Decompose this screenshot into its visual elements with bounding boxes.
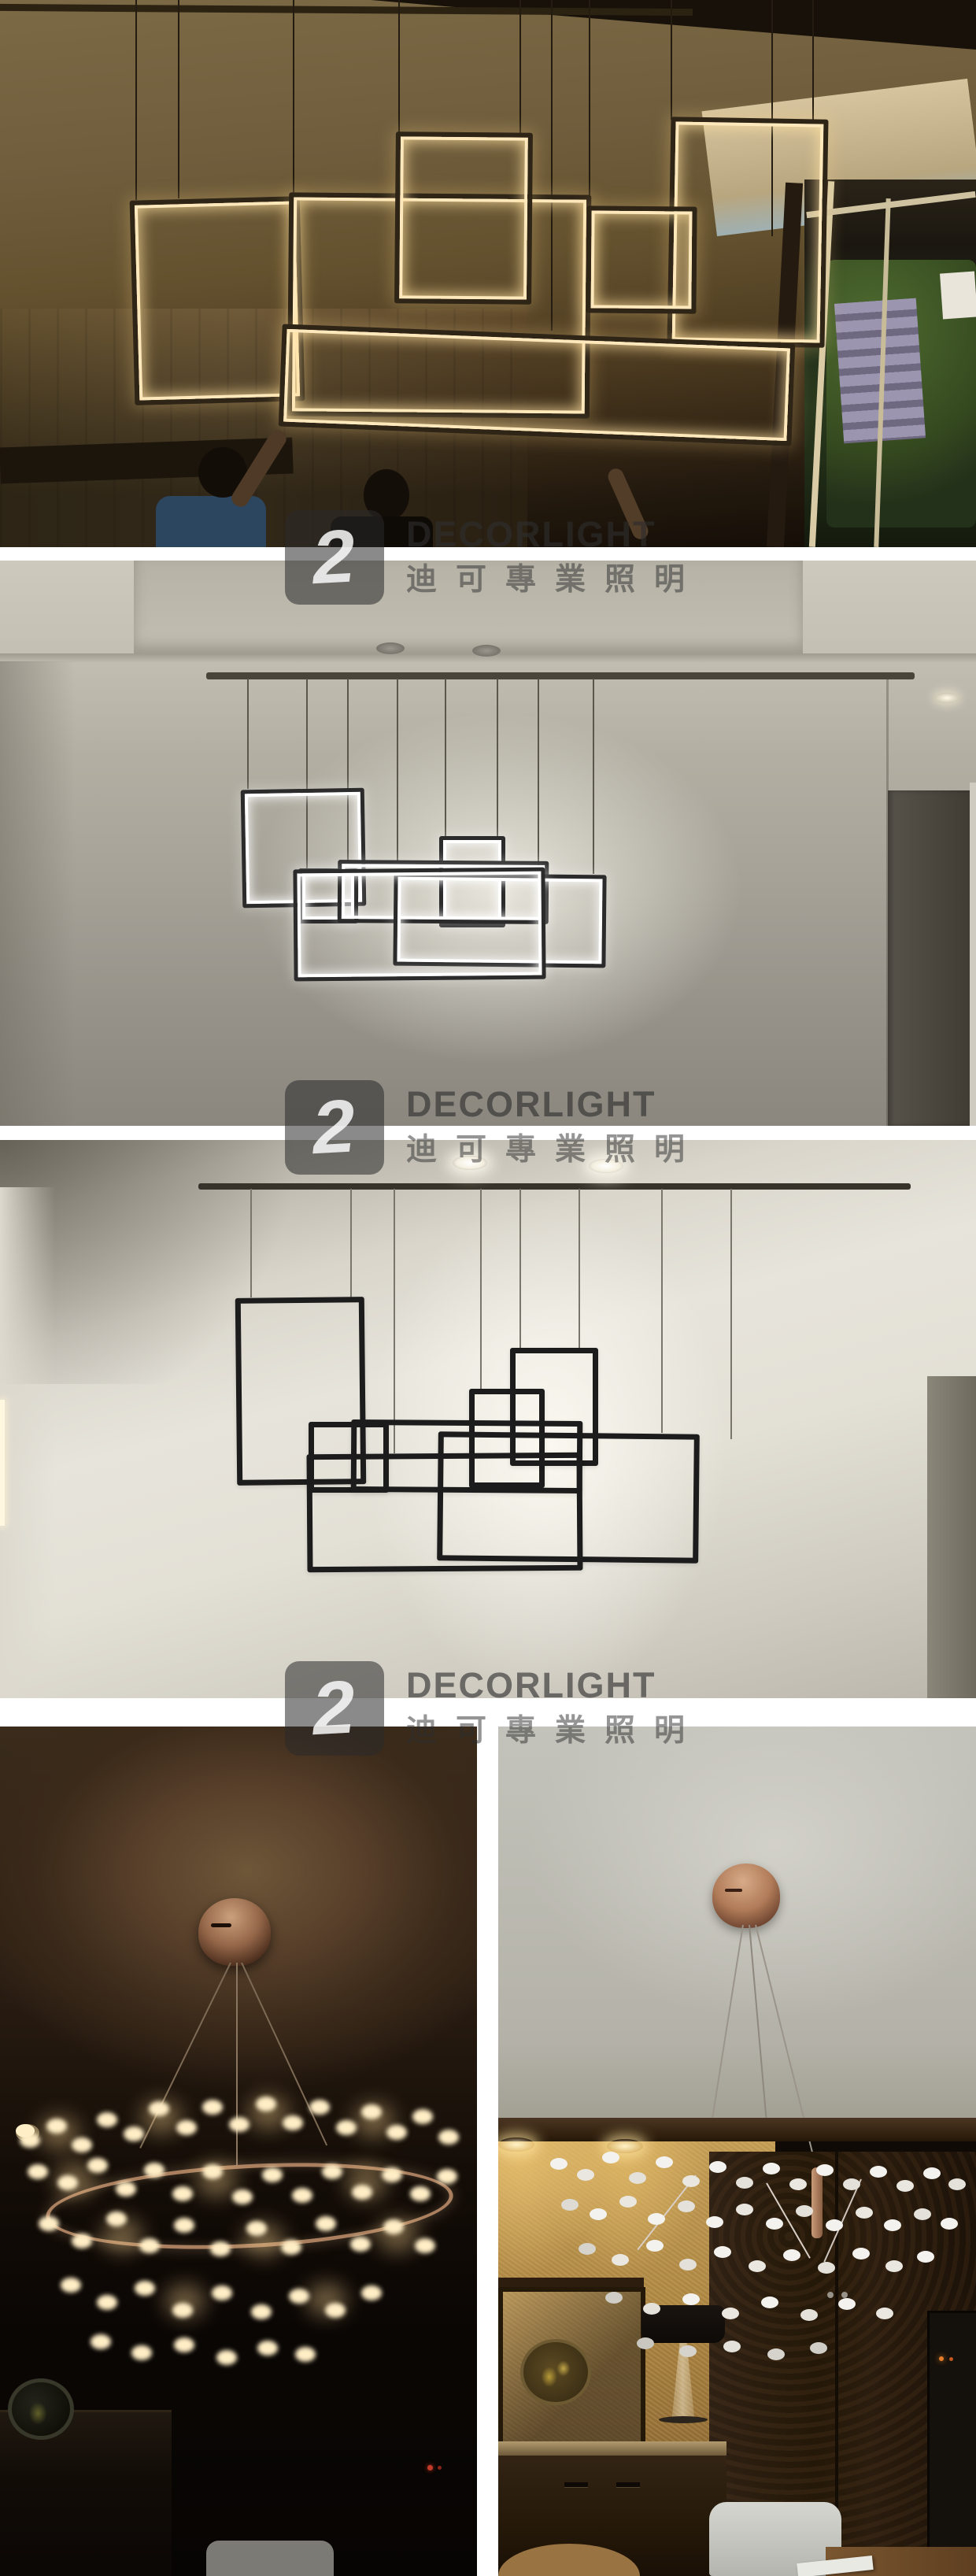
decorlight-logo-icon: 2 (285, 510, 384, 605)
drawer-handle (564, 2482, 588, 2487)
petal-unlit-cluster (550, 2158, 567, 2170)
brand-name-chinese: 迪可專業照明 (406, 564, 704, 597)
watermark: 2 DECORLIGHT 迪可專業照明 (285, 1661, 704, 1756)
spotlight-glow (498, 2137, 534, 2152)
standby-led (438, 2466, 442, 2470)
hanging-wire (241, 1963, 327, 2146)
doorway-dark (888, 790, 976, 1126)
logo-glyph: 2 (309, 1670, 360, 1748)
watermark-text: DECORLIGHT 迪可專業照明 (406, 1667, 704, 1748)
ceiling-track (198, 1183, 911, 1190)
suspension-cable (538, 679, 539, 868)
suspension-cable (250, 1189, 252, 1297)
brand-name-chinese: 迪可專業照明 (406, 1134, 704, 1167)
suspension-cable (497, 679, 498, 836)
standby-led (427, 2465, 433, 2471)
brand-name: DECORLIGHT (406, 516, 704, 553)
watermark-text: DECORLIGHT 迪可專業照明 (406, 1086, 704, 1167)
table-lamp-shade (641, 2305, 725, 2343)
round-mirror-frame (8, 2378, 74, 2440)
canopy-vent (211, 1923, 231, 1927)
led-frame-pendant (130, 196, 305, 405)
wine-fridge-light (949, 2357, 953, 2361)
wood-beam (498, 2118, 976, 2141)
left-corner-shade (0, 661, 76, 1126)
suspension-cable (480, 1189, 482, 1389)
cove-light-sliver (0, 1400, 5, 1526)
balloon-dog-display (520, 2339, 591, 2405)
recessed-downlight-lit (935, 693, 959, 703)
photo-branch-chandelier-unlit (498, 1727, 976, 2576)
logo-glyph: 2 (309, 1089, 360, 1167)
suspension-cable (135, 0, 137, 200)
suspension-cable (394, 1189, 395, 1453)
decorlight-logo-icon: 2 (285, 1661, 384, 1756)
watermark: 2 DECORLIGHT 迪可專業照明 (285, 1080, 704, 1175)
decorlight-logo-icon: 2 (285, 1080, 384, 1175)
counter-top (498, 2441, 726, 2456)
table-lamp-foot (659, 2416, 708, 2423)
recessed-downlight (472, 645, 501, 657)
chandelier-ring (44, 2154, 456, 2259)
suspension-cable (350, 1189, 352, 1297)
suspension-cable (445, 679, 446, 836)
wine-fridge (927, 2311, 976, 2576)
ceiling-canopy (198, 1898, 271, 1966)
photo-lit-frames-dusk (0, 0, 976, 547)
suspension-cable (519, 0, 521, 134)
recessed-downlight (376, 642, 405, 654)
canopy-vent (725, 1889, 742, 1892)
chair-silhouette (206, 2541, 334, 2576)
brand-name: DECORLIGHT (406, 1086, 704, 1123)
chandelier-stem (811, 2167, 823, 2238)
petal-light-cluster (16, 2124, 35, 2137)
ceiling-track (206, 672, 915, 679)
door-knob (827, 2292, 834, 2298)
suspension-cable (579, 1189, 580, 1348)
doorway-dark (927, 1376, 976, 1698)
hanging-wire (236, 1963, 238, 2166)
photo-unlit-black-frames (0, 1140, 976, 1698)
suspension-cable (293, 0, 294, 194)
sky-patch (940, 272, 976, 320)
suspension-cable (589, 0, 590, 206)
suspension-cable (593, 679, 594, 874)
product-photo-page: 2 DECORLIGHT 迪可專業照明 2 DECORLIGHT 迪可專業照明 … (0, 0, 976, 2576)
drawer-handle (616, 2482, 640, 2487)
door-knob (841, 2292, 848, 2298)
brand-name-chinese: 迪可專業照明 (406, 1715, 704, 1748)
suspension-cable (671, 0, 672, 120)
suspension-cable (812, 0, 814, 120)
suspension-cable (519, 1189, 521, 1348)
led-frame-pendant-off (306, 1453, 582, 1572)
led-frame-pendant (394, 131, 533, 305)
logo-glyph: 2 (309, 519, 360, 597)
brand-name: DECORLIGHT (406, 1667, 704, 1704)
hanging-wire (139, 1963, 231, 2149)
suspension-cable (730, 1189, 732, 1439)
suspension-cable (397, 679, 398, 861)
suspension-cable (661, 1189, 663, 1433)
led-frame-pendant (279, 324, 796, 446)
photo-branch-chandelier-lit (0, 1727, 477, 2576)
led-frame-pendant (293, 868, 545, 982)
wall-corner-line (886, 679, 889, 1126)
suspension-cable (247, 679, 249, 789)
led-frame-pendant (586, 205, 697, 313)
door-jamb (970, 783, 976, 1126)
wine-fridge-light (939, 2356, 944, 2361)
left-wall-band (0, 1187, 55, 1698)
ceiling-canopy (712, 1864, 780, 1928)
spotlight-glow (607, 2139, 643, 2153)
watermark-text: DECORLIGHT 迪可專業照明 (406, 516, 704, 597)
suspension-cable (398, 0, 400, 134)
photo-lit-frames-beige-room (0, 561, 976, 1126)
installer-torso (156, 496, 266, 547)
suspension-cable (178, 0, 179, 198)
watermark: 2 DECORLIGHT 迪可專業照明 (285, 510, 704, 605)
